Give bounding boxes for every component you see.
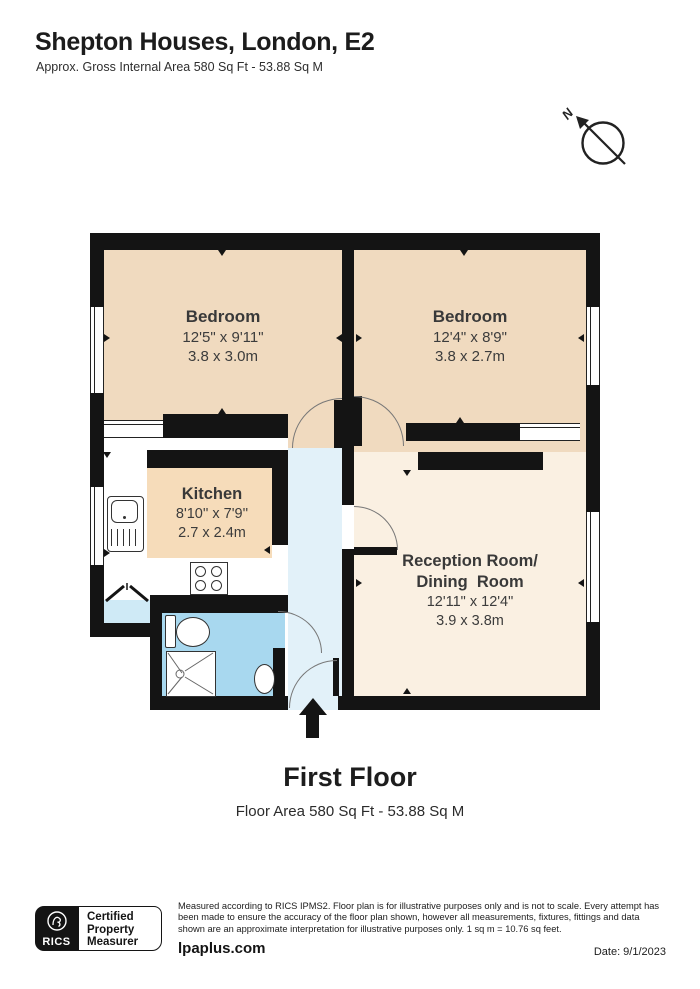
wall-kitchen-bathroom-divider: [150, 595, 288, 613]
room-name: Bedroom: [113, 306, 333, 328]
kitchen-label: Kitchen 8'10'' x 7'9'' 2.7 x 2.4m: [137, 484, 287, 542]
room-name-line2: Dining Room: [360, 572, 580, 593]
reception-label: Reception Room/ Dining Room 12'11" x 12'…: [360, 551, 580, 630]
wall-right: [586, 233, 600, 710]
wall-center-lower: [342, 549, 354, 696]
wall-kitchen-top: [147, 450, 288, 468]
wall-bathroom-right: [273, 648, 285, 696]
hob-icon: [190, 562, 228, 595]
wall-bedroom-right-bottom: [406, 423, 520, 441]
page-title: Shepton Houses, London, E2: [35, 28, 374, 57]
window-bedroom-right-bottom: [520, 423, 580, 441]
room-dims-imperial: 12'4" x 8'9": [360, 328, 580, 347]
window-bedroom-left-bottom: [104, 420, 163, 438]
room-name-line1: Reception Room/: [360, 551, 580, 572]
compass-north-label: N: [559, 105, 577, 122]
room-dims-metric: 3.8 x 3.0m: [113, 347, 333, 366]
wall-tick: [456, 417, 464, 423]
room-name: Bedroom: [360, 306, 580, 328]
room-dims-imperial: 12'5" x 9'11": [113, 328, 333, 347]
room-dims-metric: 2.7 x 2.4m: [137, 524, 287, 543]
sink-bowl: [111, 500, 138, 523]
sink-drainer-lines: [111, 529, 139, 546]
wall-tick: [218, 250, 226, 256]
badge-line: Property: [87, 924, 161, 937]
page-subtitle: Approx. Gross Internal Area 580 Sq Ft - …: [36, 60, 323, 74]
bedroom-left-label: Bedroom 12'5" x 9'11" 3.8 x 3.0m: [113, 306, 333, 366]
window-reception: [586, 512, 600, 622]
wall-center-upper: [342, 247, 354, 505]
room-dims-metric: 3.9 x 3.8m: [360, 612, 580, 631]
wall-bottom: [150, 696, 600, 710]
window-bedroom-right: [586, 307, 600, 385]
floor-subtitle: Floor Area 580 Sq Ft - 53.88 Sq M: [0, 803, 700, 820]
wall-tick: [403, 688, 411, 694]
wall-left: [90, 233, 104, 637]
rics-lion-icon: [45, 910, 69, 934]
date-text: Date: 9/1/2023: [500, 946, 666, 958]
window-kitchen: [90, 487, 104, 565]
compass-icon: N: [555, 95, 645, 180]
wall-bathroom-left: [150, 613, 162, 710]
badge-line: Measurer: [87, 936, 161, 949]
toilet-cistern-icon: [165, 615, 176, 648]
toilet-bowl-icon: [176, 617, 210, 647]
wall-bedroom-left-bottom: [163, 414, 288, 438]
room-dims-metric: 3.8 x 2.7m: [360, 347, 580, 366]
floor-title: First Floor: [0, 762, 700, 793]
disclaimer-text: Measured according to RICS IPMS2. Floor …: [178, 901, 668, 935]
certified-property-measurer-badge: Certified Property Measurer: [78, 906, 162, 951]
wall-tick: [103, 452, 111, 458]
bifold-door-icon: [104, 582, 150, 603]
room-name: Kitchen: [137, 484, 287, 505]
room-dims-imperial: 12'11" x 12'4": [360, 593, 580, 612]
room-dims-imperial: 8'10'' x 7'9'': [137, 505, 287, 524]
wall-tick: [218, 408, 226, 414]
entrance-arrow-stem: [306, 713, 319, 738]
website-text: lpaplus.com: [178, 940, 266, 957]
badge-line: Certified: [87, 911, 161, 924]
wall-reception-top: [418, 452, 543, 470]
wall-tick: [104, 334, 110, 342]
sink-drain: [123, 516, 126, 519]
bedroom-right-label: Bedroom 12'4" x 8'9" 3.8 x 2.7m: [360, 306, 580, 366]
floorplan-page: Shepton Houses, London, E2 Approx. Gross…: [0, 0, 700, 989]
window-bedroom-left: [90, 307, 104, 393]
rics-wordmark: RICS: [35, 936, 78, 948]
wall-tick: [264, 546, 270, 554]
wall-tick: [460, 250, 468, 256]
shower-tray-icon: [166, 651, 216, 697]
lobby-floor: [104, 600, 150, 623]
wall-tick: [336, 334, 342, 342]
wall-tick: [104, 549, 110, 557]
basin-icon: [254, 664, 275, 694]
wall-tick: [403, 470, 411, 476]
rics-logo: RICS: [35, 906, 78, 951]
